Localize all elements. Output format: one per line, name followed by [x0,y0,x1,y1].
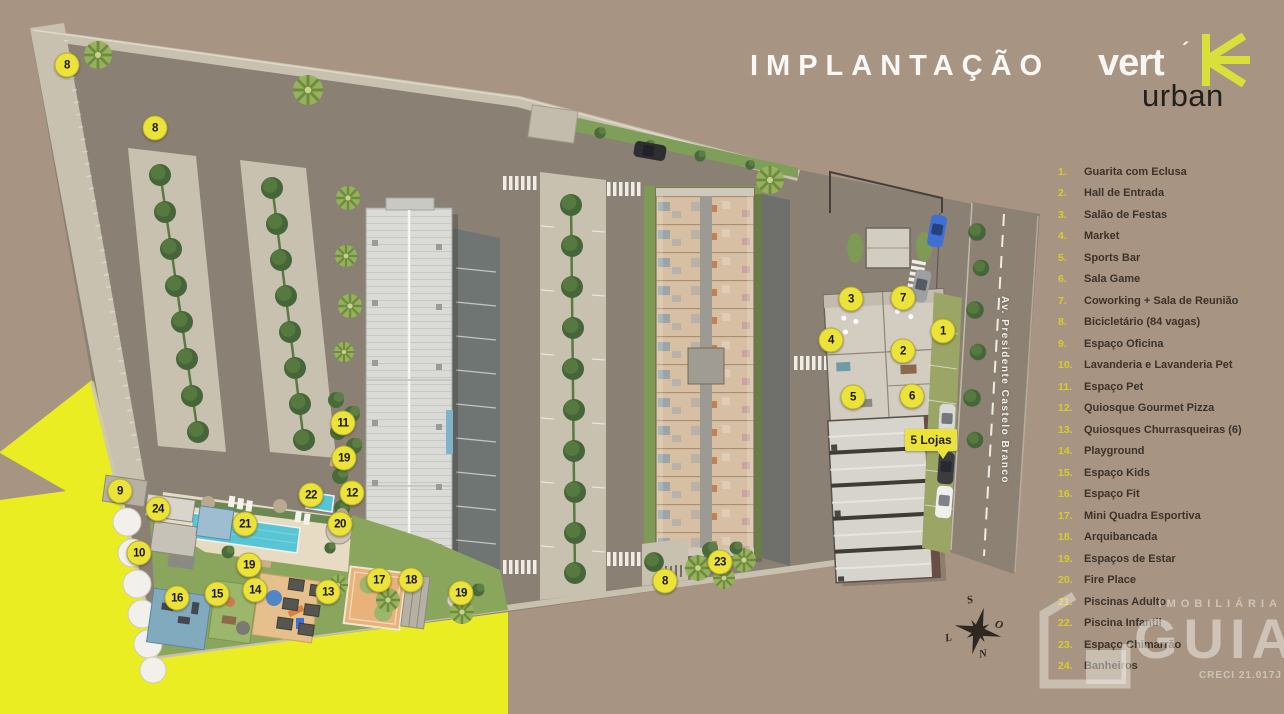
legend-number: 6. [1058,273,1084,285]
legend-item: 18.Arquibancada [1058,527,1278,549]
plan-marker-13: 13 [316,580,341,605]
legend-label: Quiosques Churrasqueiras (6) [1084,424,1242,436]
legend-label: Bicicletário (84 vagas) [1084,316,1200,328]
legend-label: Espaços de Estar [1084,553,1176,565]
legend-label: Espaço Oficina [1084,338,1163,350]
legend-number: 18. [1058,531,1084,543]
plan-marker-7: 7 [891,286,916,311]
plan-marker-12: 12 [340,481,365,506]
plan-marker-3: 3 [839,287,864,312]
legend-number: 3. [1058,209,1084,221]
compass-rose: S O N L [939,592,1017,668]
page-title: IMPLANTAÇÃO [750,50,1050,83]
legend-label: Sala Game [1084,273,1140,285]
plan-marker-18: 18 [399,568,424,593]
plan-marker-20: 20 [328,512,353,537]
plan-marker-21: 21 [233,512,258,537]
legend-item: 9.Espaço Oficina [1058,333,1278,355]
legend-number: 23. [1058,639,1084,651]
legend-label: Market [1084,230,1119,242]
building-a [366,198,458,578]
legend-number: 9. [1058,338,1084,350]
plan-marker-5: 5 [841,385,866,410]
legend-item: 8.Bicicletário (84 vagas) [1058,312,1278,334]
legend-label: Quiosque Gourmet Pizza [1084,402,1214,414]
legend-label: Guarita com Eclusa [1084,166,1187,178]
legend-number: 7. [1058,295,1084,307]
plan-marker-8: 8 [653,569,678,594]
legend-item: 15.Espaço Kids [1058,462,1278,484]
brand-accent: ´ [1182,38,1189,64]
legend-number: 11. [1058,381,1084,393]
legend-number: 1. [1058,166,1084,178]
building-b-walk [762,194,790,566]
legend-number: 4. [1058,230,1084,242]
legend-label: Playground [1084,445,1145,457]
legend-label: Espaço Pet [1084,381,1143,393]
plan-marker-15: 15 [205,582,230,607]
building-b [644,186,762,562]
poster: Av. Presidente Castelo Branco 5 Lojas 88… [0,0,1284,714]
plan-marker-17: 17 [367,568,392,593]
legend-label: Salão de Festas [1084,209,1167,221]
legend-item: 17.Mini Quadra Esportiva [1058,505,1278,527]
plan-marker-1: 1 [931,319,956,344]
legend-label: Coworking + Sala de Reunião [1084,295,1238,307]
legend-label: Espaço Kids [1084,467,1150,479]
legend-label: Sports Bar [1084,252,1140,264]
legend-number: 24. [1058,660,1084,672]
plan-marker-11: 11 [331,411,356,436]
legend-item: 24.Banheiros [1058,656,1278,678]
plan-marker-19: 19 [449,581,474,606]
median-parking-strip [540,172,606,600]
street-name-label: Av. Presidente Castelo Branco [999,296,1010,536]
legend-label: Espaço Chimarrão [1084,639,1181,651]
legend-item: 19.Espaços de Estar [1058,548,1278,570]
brand-logo: vert ´ urban [1098,38,1258,120]
legend-item: 7.Coworking + Sala de Reunião [1058,290,1278,312]
legend-number: 8. [1058,316,1084,328]
plan-marker-16: 16 [165,586,190,611]
legend-item: 22.Piscina Infantil [1058,613,1278,635]
legend-label: Hall de Entrada [1084,187,1164,199]
legend-number: 20. [1058,574,1084,586]
legend-item: 13.Quiosques Churrasqueiras (6) [1058,419,1278,441]
legend-number: 10. [1058,359,1084,371]
legend-number: 2. [1058,187,1084,199]
legend-list: 1.Guarita com Eclusa2.Hall de Entrada3.S… [1058,161,1278,677]
legend-number: 17. [1058,510,1084,522]
site-plan-graphic [0,0,1040,714]
legend-item: 23.Espaço Chimarrão [1058,634,1278,656]
plan-marker-22: 22 [299,483,324,508]
legend-item: 11.Espaço Pet [1058,376,1278,398]
plan-marker-23: 23 [708,550,733,575]
brand-name: vert [1098,44,1164,82]
legend-number: 22. [1058,617,1084,629]
plan-marker-4: 4 [819,328,844,353]
plan-marker-8: 8 [143,116,168,141]
legend-label: Mini Quadra Esportiva [1084,510,1201,522]
legend-label: Arquibancada [1084,531,1157,543]
legend-item: 14.Playground [1058,441,1278,463]
legend-number: 14. [1058,445,1084,457]
lojas-tag: 5 Lojas [905,429,957,451]
legend-item: 3.Salão de Festas [1058,204,1278,226]
legend-label: Banheiros [1084,660,1138,672]
legend-item: 12.Quiosque Gourmet Pizza [1058,398,1278,420]
plan-marker-19: 19 [237,553,262,578]
legend-label: Espaço Fit [1084,488,1140,500]
legend-number: 21. [1058,596,1084,608]
legend-number: 12. [1058,402,1084,414]
legend-number: 19. [1058,553,1084,565]
plan-marker-24: 24 [146,497,171,522]
plan-marker-6: 6 [900,384,925,409]
legend-label: Lavanderia e Lavanderia Pet [1084,359,1233,371]
legend-number: 5. [1058,252,1084,264]
legend-label: Piscina Infantil [1084,617,1162,629]
plan-marker-10: 10 [127,541,152,566]
plan-marker-14: 14 [243,578,268,603]
legend-item: 4.Market [1058,226,1278,248]
brand-sub-name: urban [1142,80,1224,111]
legend-label: Piscinas Adulto [1084,596,1166,608]
legend-item: 21.Piscinas Adulto [1058,591,1278,613]
legend-item: 16.Espaço Fit [1058,484,1278,506]
legend-number: 16. [1058,488,1084,500]
plan-marker-2: 2 [891,339,916,364]
legend-item: 6.Sala Game [1058,269,1278,291]
shaded-parking-strip [452,228,500,590]
legend-label: Fire Place [1084,574,1136,586]
legend-item: 10.Lavanderia e Lavanderia Pet [1058,355,1278,377]
legend-item: 20.Fire Place [1058,570,1278,592]
plan-marker-19: 19 [332,446,357,471]
legend-item: 2.Hall de Entrada [1058,183,1278,205]
plan-marker-8: 8 [55,53,80,78]
legend-item: 1.Guarita com Eclusa [1058,161,1278,183]
legend-item: 5.Sports Bar [1058,247,1278,269]
legend-number: 13. [1058,424,1084,436]
plan-marker-9: 9 [108,479,133,504]
legend-number: 15. [1058,467,1084,479]
